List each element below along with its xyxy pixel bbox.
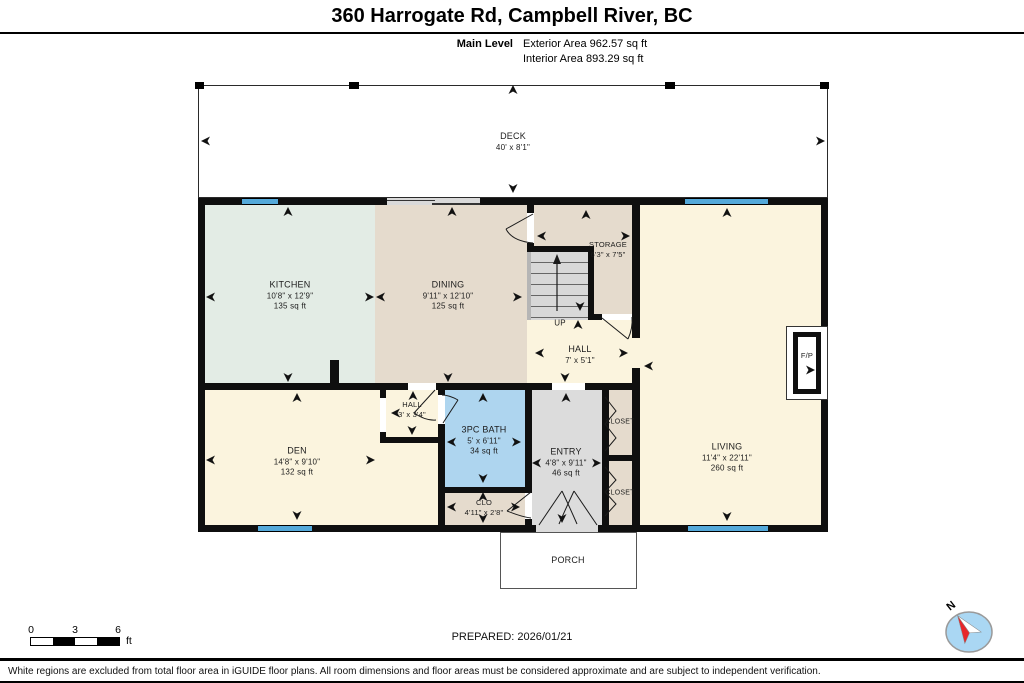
footer-disclaimer: White regions are excluded from total fl… <box>8 666 821 677</box>
stairs <box>531 252 588 320</box>
label-clo: CLO4'11" x 2'8" <box>465 498 504 518</box>
label-fireplace: F/P <box>801 351 813 361</box>
compass-icon: N <box>933 595 1005 667</box>
interior-area: Interior Area 893.29 sq ft <box>523 53 643 65</box>
door-opening <box>602 314 632 320</box>
wall <box>527 246 594 252</box>
door-opening <box>525 490 532 519</box>
wall <box>594 314 602 320</box>
prepared-date: PREPARED: 2026/01/21 <box>0 631 1024 643</box>
wall-stub <box>330 360 339 383</box>
level-label: Main Level <box>393 38 513 50</box>
wall <box>380 437 445 443</box>
window-living-bottom <box>688 525 768 533</box>
label-hall: HALL7' x 5'1" <box>565 344 595 366</box>
label-closet-upper: CLOSET <box>605 417 634 426</box>
label-den: DEN14'8" x 9'10"132 sq ft <box>274 446 320 479</box>
door-opening <box>380 398 386 432</box>
wall-stub <box>602 385 609 397</box>
label-living: LIVING11'4" x 22'11"260 sq ft <box>702 442 752 475</box>
page-title: 360 Harrogate Rd, Campbell River, BC <box>0 5 1024 28</box>
entry-door-threshold <box>536 525 598 532</box>
opening <box>632 338 640 368</box>
floorplan-page: 360 Harrogate Rd, Campbell River, BC Mai… <box>0 0 1024 683</box>
bottom-border <box>0 681 1024 683</box>
door-opening <box>552 383 585 390</box>
wall-stub <box>602 449 609 463</box>
sliding-door-panel <box>387 200 435 202</box>
door-opening <box>408 383 436 390</box>
deck-post <box>195 82 204 89</box>
wall <box>380 390 386 398</box>
door-opening <box>527 213 534 243</box>
wall-stub <box>602 515 609 527</box>
wall <box>527 205 534 213</box>
label-kitchen: KITCHEN10'8" x 12'9"135 sq ft <box>267 280 313 313</box>
window-living-top <box>685 198 768 206</box>
label-porch: PORCH <box>551 555 585 567</box>
label-bath: 3PC BATH5' x 6'11"34 sq ft <box>462 425 507 458</box>
footer-rule <box>0 658 1024 661</box>
wall <box>445 383 640 390</box>
compass-north-label: N <box>944 599 958 613</box>
label-closet-lower: CLOSET <box>605 488 634 497</box>
exterior-area: Exterior Area 962.57 sq ft <box>523 38 647 50</box>
label-stairs-up: UP <box>554 319 566 330</box>
title-rule <box>0 32 1024 34</box>
wall <box>632 205 640 338</box>
window-kitchen <box>242 198 278 206</box>
deck-post <box>349 82 359 89</box>
fireplace-inner <box>798 337 816 389</box>
deck-post <box>665 82 675 89</box>
label-hall-small: HALL3' x 3'4" <box>398 400 426 420</box>
door-opening <box>438 395 445 424</box>
label-storage: STORAGE6'3" x 7'5" <box>589 240 627 260</box>
window-den <box>258 525 312 533</box>
label-deck: DECK40' x 8'1" <box>496 131 530 153</box>
label-dining: DINING9'11" x 12'10"125 sq ft <box>423 280 474 313</box>
label-entry: ENTRY4'8" x 9'11"46 sq ft <box>545 447 586 480</box>
wall <box>438 487 532 493</box>
deck-post <box>820 82 829 89</box>
sliding-door-panel <box>432 203 480 205</box>
